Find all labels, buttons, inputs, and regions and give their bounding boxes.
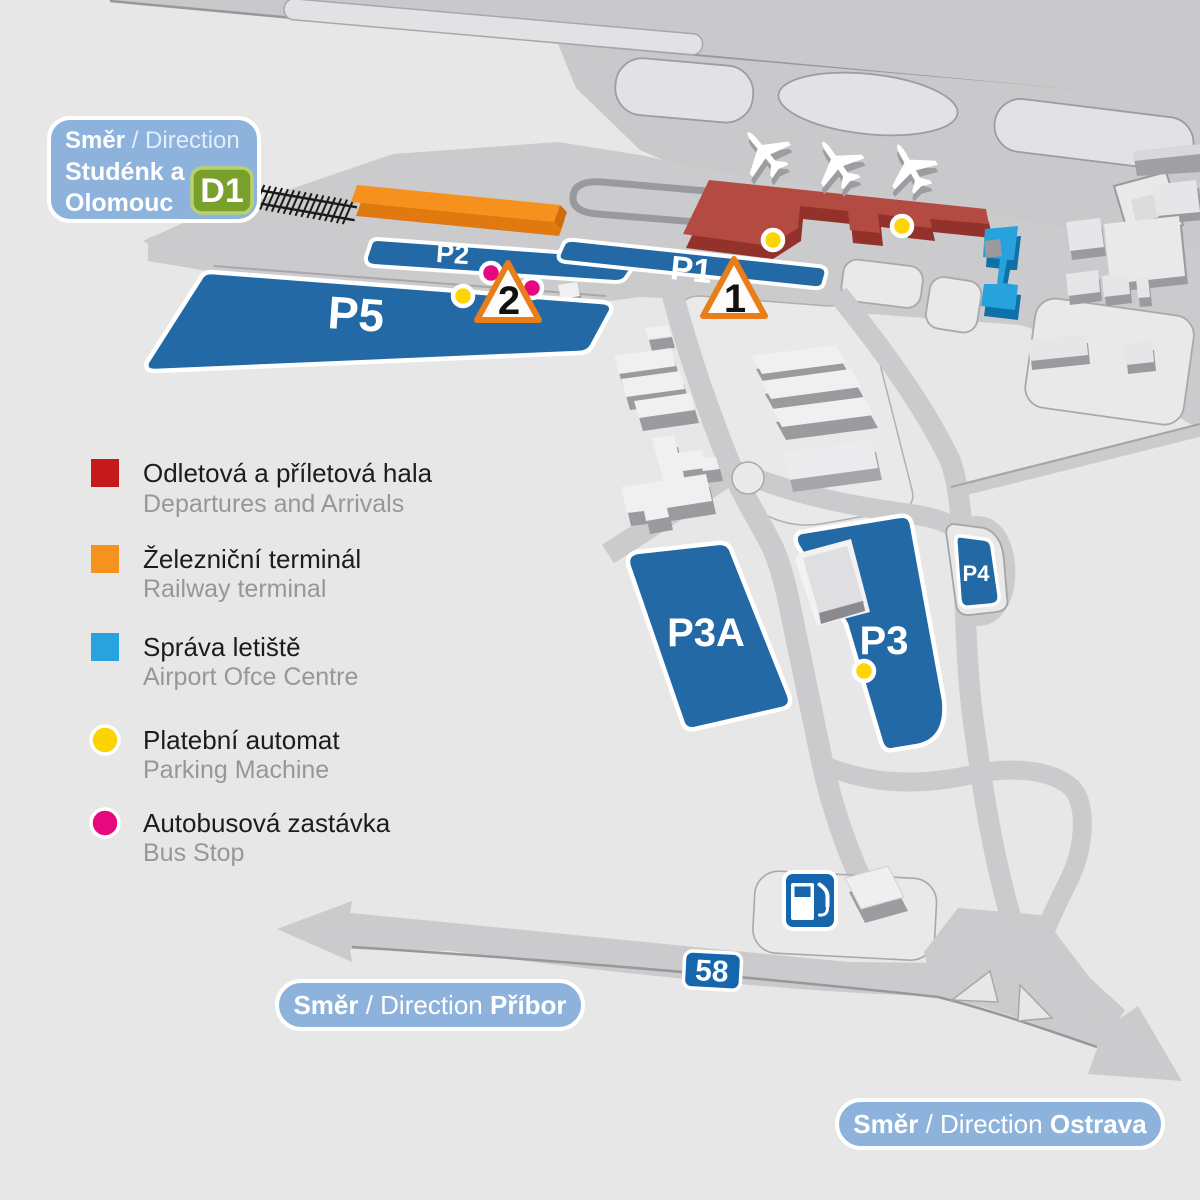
svg-text:Studénk a: Studénk a (65, 158, 186, 186)
svg-text:Směr / Direction: Směr / Direction (65, 127, 240, 154)
svg-text:2: 2 (498, 279, 520, 323)
svg-text:Směr / Direction Příbor: Směr / Direction Příbor (293, 990, 566, 1020)
svg-text:Správa letiště: Správa letiště (143, 632, 301, 662)
svg-text:Airport Ofce Centre: Airport Ofce Centre (143, 663, 358, 691)
svg-text:Parking Machine: Parking Machine (143, 756, 329, 784)
svg-text:Autobusová zastávka: Autobusová zastávka (143, 808, 391, 838)
svg-text:Platební automat: Platební automat (143, 725, 340, 755)
svg-text:1: 1 (724, 277, 746, 321)
svg-text:Railway terminal: Railway terminal (143, 575, 326, 603)
svg-text:Železniční terminál: Železniční terminál (143, 544, 361, 574)
svg-text:Odletová a příletová hala: Odletová a příletová hala (143, 458, 433, 488)
svg-text:Bus Stop: Bus Stop (143, 839, 244, 867)
svg-text:P4: P4 (963, 561, 991, 586)
svg-text:Olomouc: Olomouc (65, 189, 173, 217)
svg-text:P3: P3 (860, 619, 909, 663)
svg-text:P3A: P3A (667, 611, 745, 655)
svg-text:P1: P1 (668, 249, 713, 291)
svg-text:Departures and Arrivals: Departures and Arrivals (143, 490, 404, 518)
svg-text:58: 58 (694, 954, 729, 989)
svg-text:P2: P2 (435, 238, 470, 270)
svg-text:Směr / Direction Ostrava: Směr / Direction Ostrava (853, 1109, 1147, 1139)
svg-text:D1: D1 (200, 172, 243, 210)
svg-text:P5: P5 (326, 286, 386, 342)
